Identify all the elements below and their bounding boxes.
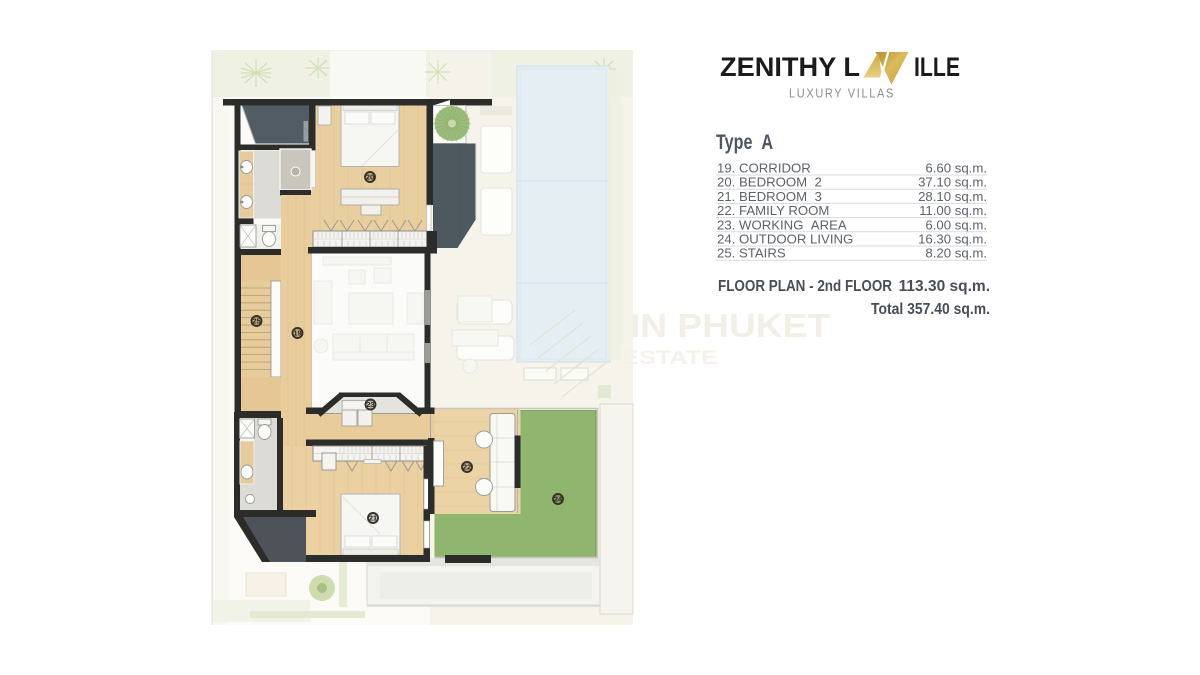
svg-text:21: 21	[369, 514, 377, 523]
svg-text:24. OUTDOOR LIVING: 24. OUTDOOR LIVING	[717, 232, 853, 247]
svg-text:21. BEDROOM 3: 21. BEDROOM 3	[717, 189, 822, 204]
svg-text:22: 22	[463, 463, 471, 472]
svg-text:11.00 sq.m.: 11.00 sq.m.	[919, 203, 987, 218]
svg-text:25. STAIRS: 25. STAIRS	[717, 246, 786, 261]
svg-text:LUXURY VILLAS: LUXURY VILLAS	[789, 86, 895, 101]
svg-text:6.60 sq.m.: 6.60 sq.m.	[925, 161, 987, 176]
svg-text:6.00 sq.m.: 6.00 sq.m.	[925, 217, 987, 232]
svg-text:28.10 sq.m.: 28.10 sq.m.	[918, 189, 987, 204]
svg-text:113.30 sq.m.: 113.30 sq.m.	[899, 278, 990, 295]
svg-text:22. FAMILY ROOM: 22. FAMILY ROOM	[717, 203, 829, 218]
svg-text:25: 25	[252, 317, 260, 326]
svg-text:16.30 sq.m.: 16.30 sq.m.	[918, 232, 987, 247]
svg-text:IN PHUKET: IN PHUKET	[630, 307, 830, 344]
svg-text:ILLE: ILLE	[914, 52, 960, 82]
svg-text:ZENITHY L: ZENITHY L	[720, 52, 860, 82]
svg-text:ESTATE: ESTATE	[622, 348, 718, 369]
svg-text:23. WORKING AREA: 23. WORKING AREA	[717, 217, 847, 232]
svg-text:37.10 sq.m.: 37.10 sq.m.	[918, 175, 987, 190]
svg-text:19: 19	[293, 329, 301, 338]
svg-text:FLOOR PLAN - 2nd FLOOR: FLOOR PLAN - 2nd FLOOR	[718, 278, 892, 295]
svg-text:Total 357.40 sq.m.: Total 357.40 sq.m.	[871, 301, 990, 318]
svg-text:Type A: Type A	[716, 130, 773, 154]
svg-text:23: 23	[366, 400, 374, 409]
svg-text:8.20 sq.m.: 8.20 sq.m.	[925, 246, 987, 261]
svg-text:20: 20	[366, 173, 374, 182]
svg-text:19. CORRIDOR: 19. CORRIDOR	[717, 161, 811, 176]
svg-text:24: 24	[554, 495, 563, 504]
svg-text:20. BEDROOM 2: 20. BEDROOM 2	[717, 175, 822, 190]
